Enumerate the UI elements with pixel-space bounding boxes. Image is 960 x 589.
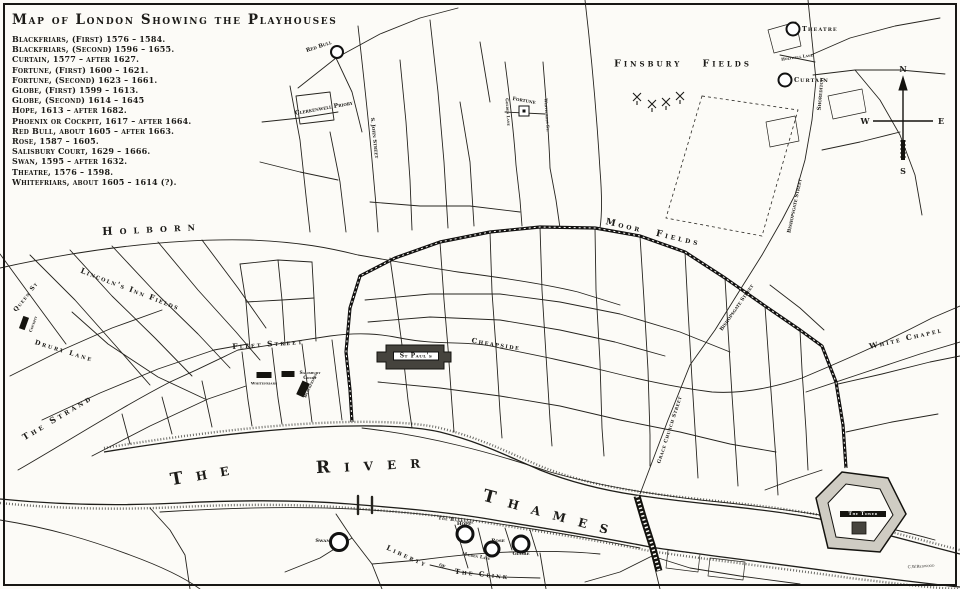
marker-fortune — [519, 106, 530, 117]
legend-item: Whitefriars, about 1605 – 1614 (?). — [12, 177, 191, 187]
marker-salisbury-court — [282, 371, 295, 377]
legend-item: Curtain, 1577 – after 1627. — [12, 54, 191, 64]
legend-item: Fortune, (First) 1600 – 1621. — [12, 65, 191, 75]
label-globe: Globe — [513, 551, 530, 557]
playhouse-legend: Blackfriars, (First) 1576 – 1584. Blackf… — [12, 34, 191, 187]
label-whitefriars: Whitefriars — [251, 381, 277, 386]
label-rose: Rose — [491, 538, 505, 544]
map-title: Map of London Showing the Playhouses — [12, 12, 337, 28]
london-bridge — [637, 496, 659, 571]
label-finsbury-fields: Finsbury Fields — [614, 59, 752, 70]
marker-hope — [456, 525, 475, 544]
label-swan: Swan — [315, 538, 330, 544]
river-thames-banks — [0, 422, 960, 589]
marker-whitefriars — [257, 372, 272, 378]
label-the-tower: The Tower — [840, 511, 886, 517]
legend-item: Phoenix or Cockpit, 1617 – after 1664. — [12, 116, 191, 126]
marker-theatre — [786, 22, 801, 37]
legend-item: Swan, 1595 – after 1632. — [12, 156, 191, 166]
legend-item: Salisbury Court, 1629 – 1666. — [12, 146, 191, 156]
legend-item: Globe, (First) 1599 – 1613. — [12, 85, 191, 95]
label-st-pauls: St Paul's — [393, 352, 439, 361]
legend-item: Theatre, 1576 – 1598. — [12, 167, 191, 177]
legend-item: Red Bull, about 1605 – after 1663. — [12, 126, 191, 136]
label-theatre: Theatre — [802, 25, 838, 33]
legend-item: Globe, (Second) 1614 – 1645 — [12, 95, 191, 105]
compass-s: S — [900, 166, 906, 176]
compass-n: N — [899, 64, 906, 74]
compass-rose — [873, 77, 933, 160]
legend-item: Blackfriars, (Second) 1596 – 1655. — [12, 44, 191, 54]
marker-red-bull — [330, 45, 344, 59]
legend-item: Blackfriars, (First) 1576 – 1584. — [12, 34, 191, 44]
map-canvas: Map of London Showing the Playhouses Bla… — [0, 0, 960, 589]
marker-curtain — [778, 73, 793, 88]
label-hope: Hope — [457, 521, 471, 527]
marker-swan — [329, 532, 349, 552]
compass-e: E — [938, 116, 944, 126]
windmill-icons — [633, 92, 684, 112]
legend-item: Hope, 1613 – after 1682. — [12, 105, 191, 115]
legend-item: Rose, 1587 – 1605. — [12, 136, 191, 146]
legend-item: Fortune, (Second) 1623 – 1661. — [12, 75, 191, 85]
moorfields-boundary — [666, 96, 798, 236]
label-curtain: Curtain — [794, 76, 829, 84]
compass-w: W — [861, 116, 870, 126]
